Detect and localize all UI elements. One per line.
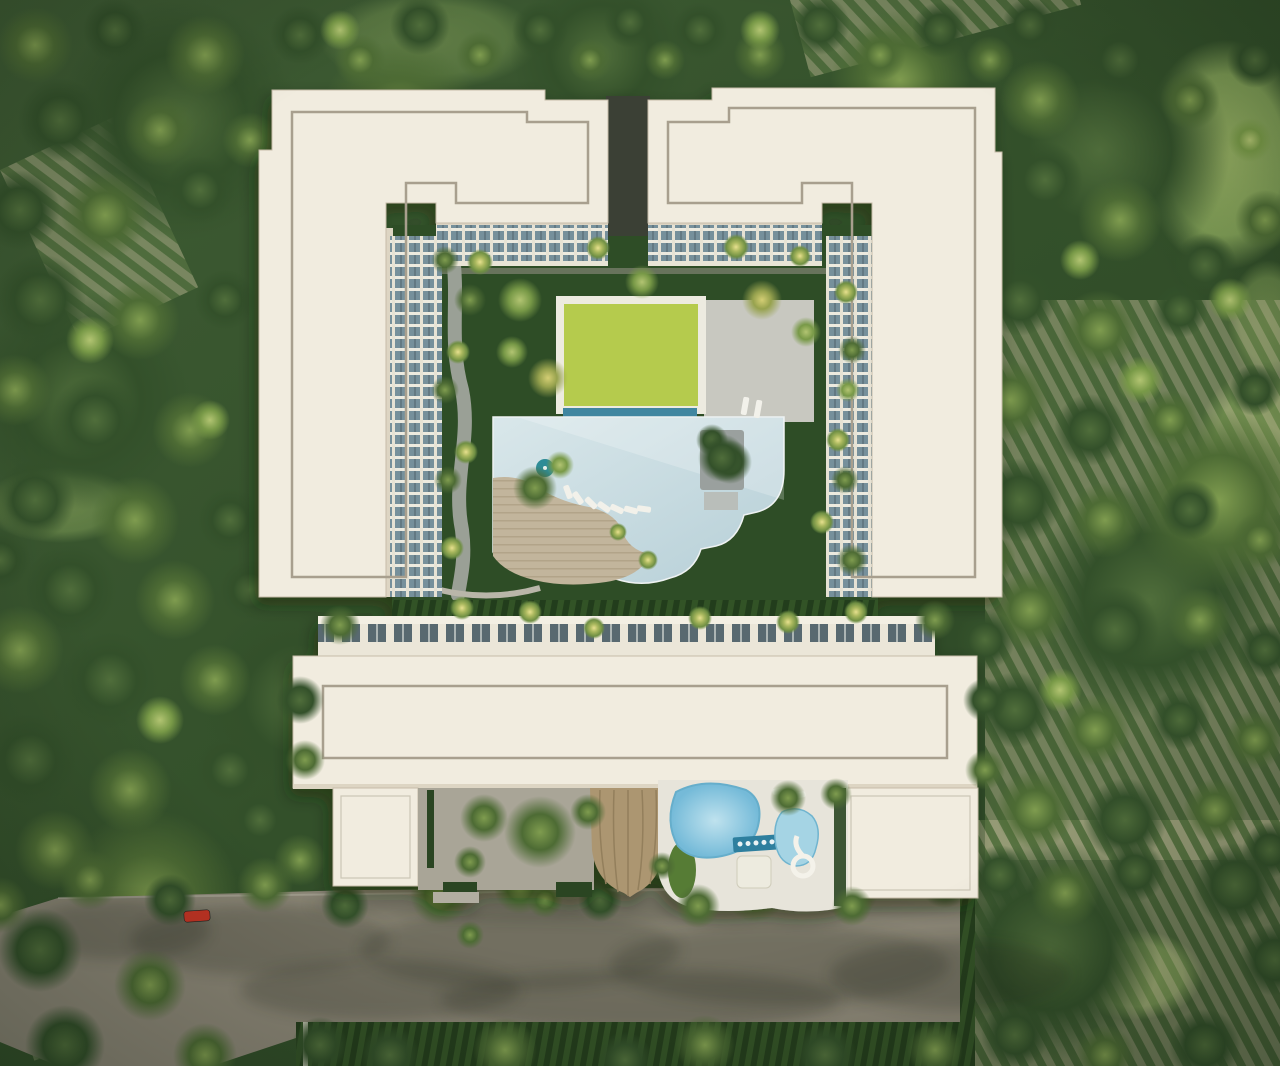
condominium-aerial-render: [0, 0, 1280, 1066]
aerial-render-stage: [0, 0, 1280, 1066]
vignette-overlay: [0, 0, 1280, 1066]
